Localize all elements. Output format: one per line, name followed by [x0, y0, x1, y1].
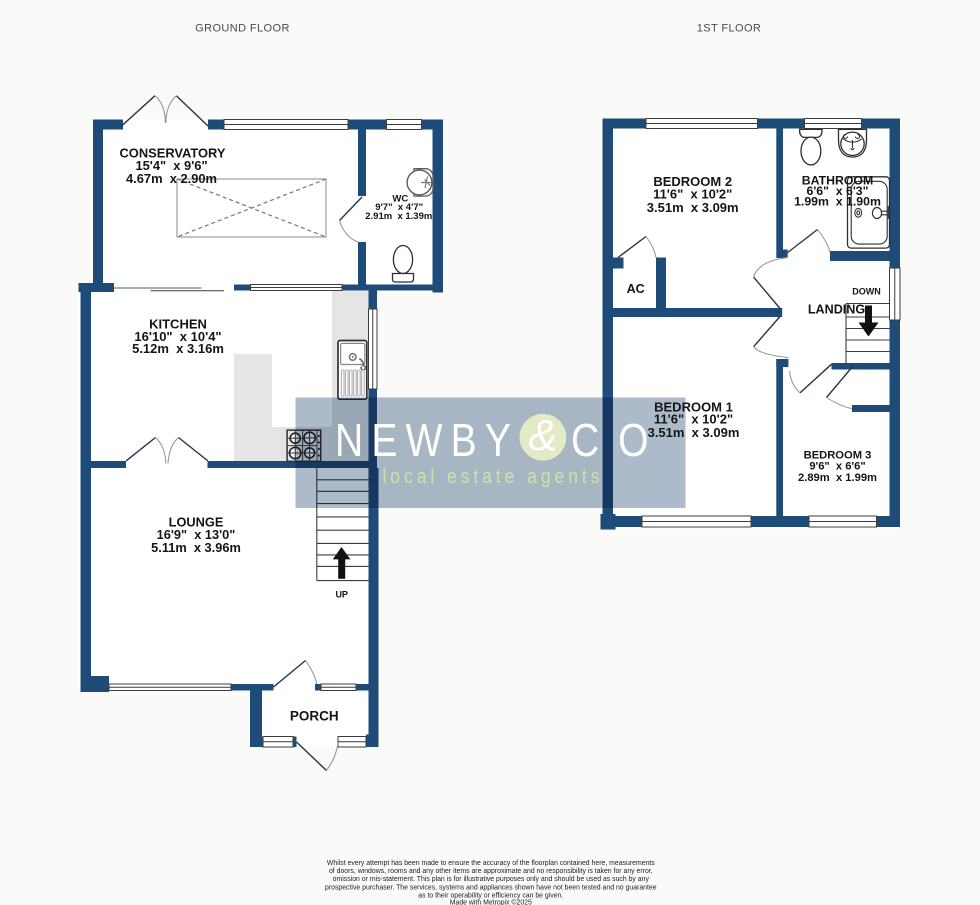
svg-text:as to their operability or eff: as to their operability or efficiency ca… [418, 893, 563, 900]
svg-text:PORCH: PORCH [290, 709, 339, 724]
svg-text:&: & [528, 411, 557, 460]
svg-text:5.12m x 3.16m: 5.12m x 3.16m [132, 341, 224, 356]
svg-text:AC: AC [627, 282, 645, 296]
svg-text:Made with Metropix ©2025: Made with Metropix ©2025 [450, 899, 532, 905]
svg-text:omission or mis-statement. Thi: omission or mis-statement. This plan is … [333, 876, 650, 883]
svg-text:4.67m x 2.90m: 4.67m x 2.90m [126, 171, 217, 186]
svg-text:1ST FLOOR: 1ST FLOOR [697, 23, 762, 35]
svg-text:2.89m x 1.99m: 2.89m x 1.99m [798, 472, 877, 484]
svg-text:1.99m x 1.90m: 1.99m x 1.90m [794, 194, 881, 208]
svg-text:prospective purchaser. The ser: prospective purchaser. The services, sys… [325, 884, 657, 891]
svg-text:Whilst every attempt has been: Whilst every attempt has been made to en… [327, 860, 655, 867]
svg-text:NEWBY: NEWBY [335, 415, 511, 467]
svg-text:2.91m x 1.39m: 2.91m x 1.39m [365, 211, 432, 222]
svg-text:3.51m x 3.09m: 3.51m x 3.09m [647, 200, 739, 215]
svg-text:3.51m x 3.09m: 3.51m x 3.09m [648, 425, 740, 440]
svg-text:of doors, windows, rooms and a: of doors, windows, rooms and any other i… [329, 868, 653, 875]
svg-text:5.11m x 3.96m: 5.11m x 3.96m [151, 540, 241, 555]
svg-text:9'6" x 6'6": 9'6" x 6'6" [809, 461, 865, 473]
svg-text:GROUND FLOOR: GROUND FLOOR [195, 23, 290, 35]
svg-text:BEDROOM 3: BEDROOM 3 [804, 450, 872, 462]
svg-text:UP: UP [335, 590, 348, 600]
svg-text:LANDING: LANDING [808, 303, 866, 317]
svg-text:DOWN: DOWN [852, 287, 881, 297]
